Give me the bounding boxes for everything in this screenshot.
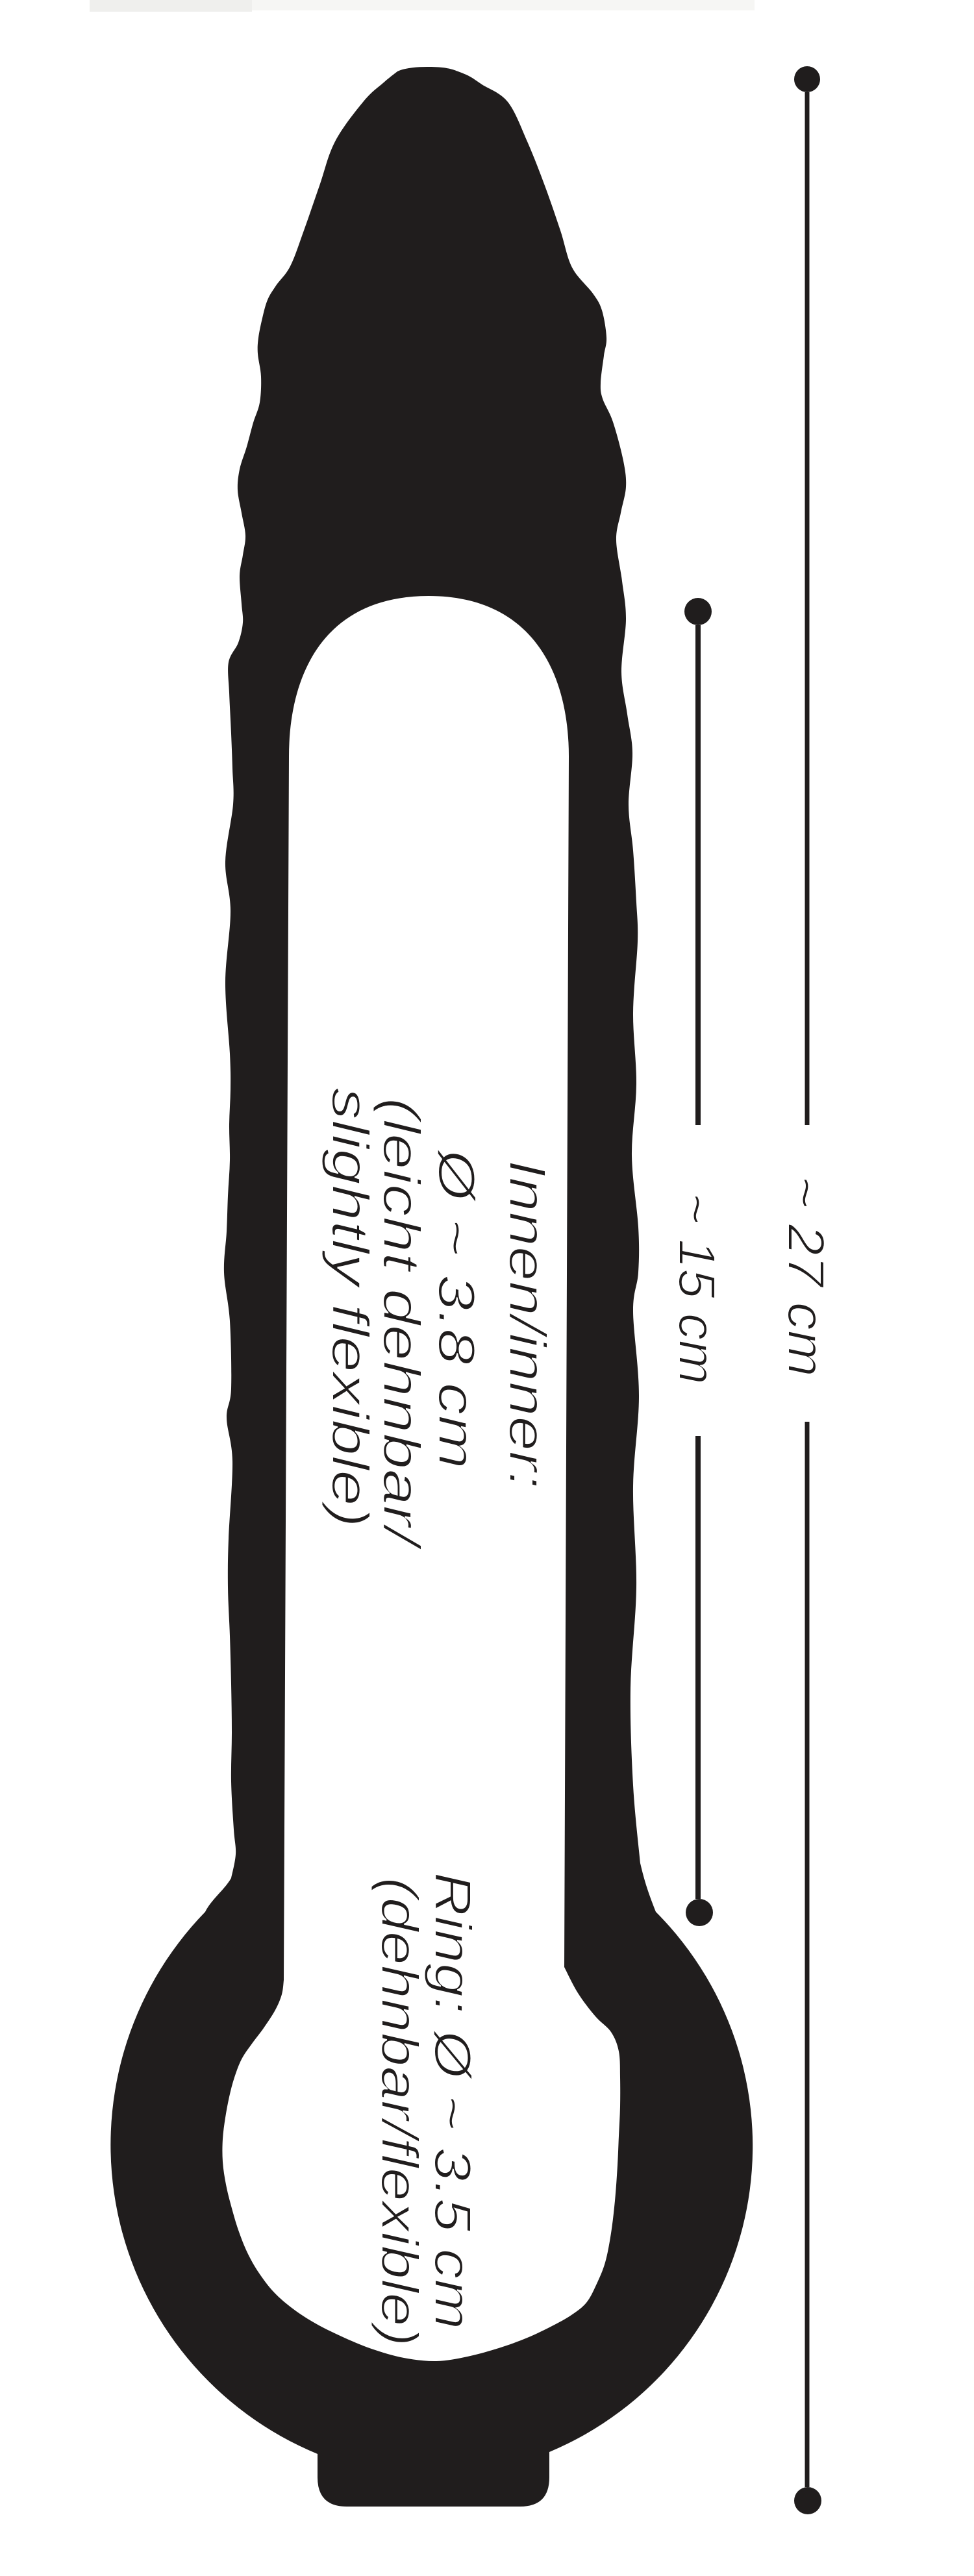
svg-text:~ 15 cm: ~ 15 cm (668, 1193, 726, 1384)
svg-text:Ring: Ø ~ 3.5 cm: Ring: Ø ~ 3.5 cm (424, 1872, 482, 2330)
svg-text:(leicht dehnbar/: (leicht dehnbar/ (372, 1097, 430, 1550)
svg-text:slightly flexible): slightly flexible) (321, 1087, 379, 1528)
svg-text:Ø ~ 3.8 cm: Ø ~ 3.8 cm (427, 1148, 485, 1469)
svg-text:~ 27 cm: ~ 27 cm (777, 1176, 835, 1377)
svg-text:(dehnbar/flexible): (dehnbar/flexible) (371, 1877, 429, 2346)
svg-text:Innen/inner:: Innen/inner: (499, 1159, 557, 1489)
